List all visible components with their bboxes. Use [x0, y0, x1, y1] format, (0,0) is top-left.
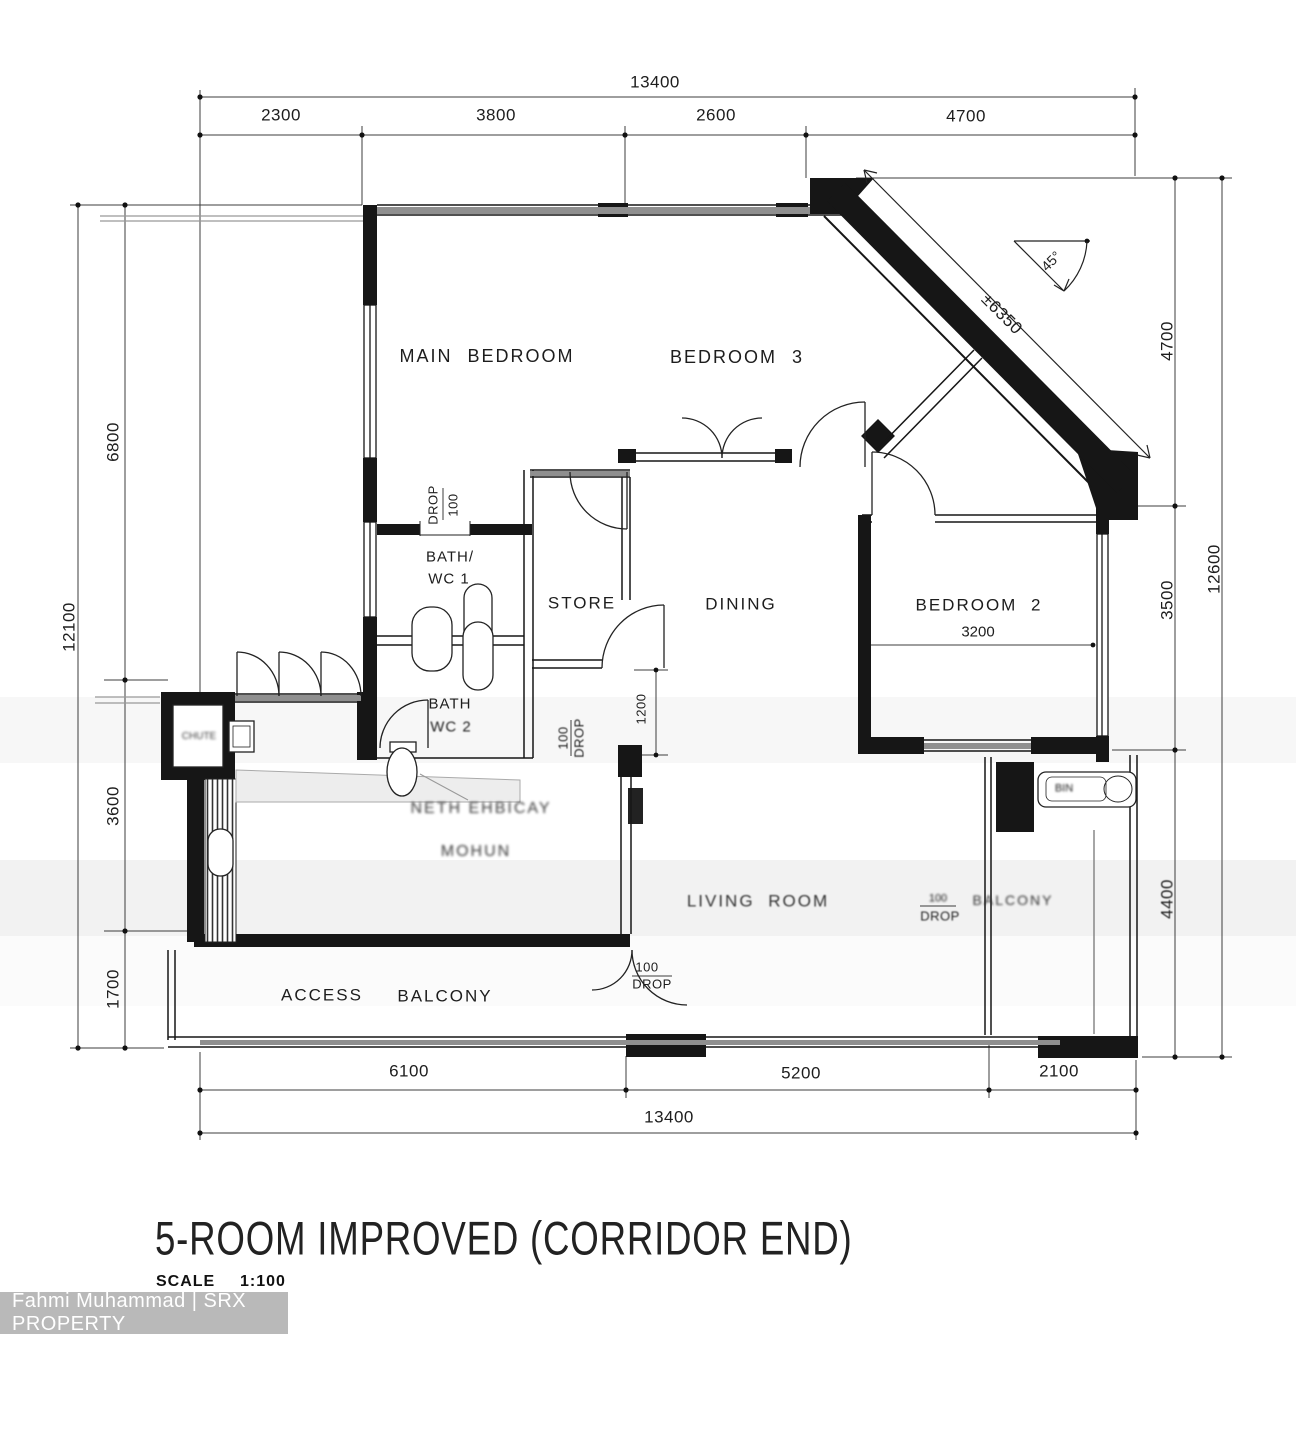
bath1-fitting2 — [412, 607, 452, 671]
drop-balcony-line1: 100 — [929, 894, 947, 905]
room-bedroom-3: BEDROOM 3 — [670, 348, 804, 366]
kitchen-garbled-line2: MOHUN — [441, 844, 511, 860]
dim-top-seg-1: 2300 — [261, 107, 301, 124]
chute-label: CHUTE — [182, 732, 216, 742]
room-main-bedroom: MAIN BEDROOM — [399, 347, 574, 365]
dim-bottom-seg-1: 6100 — [389, 1063, 429, 1080]
dim-left-total: 12100 — [61, 602, 78, 652]
drop-bath-line1: DROP — [427, 485, 440, 525]
room-store: STORE — [548, 595, 616, 612]
dim-bottom-seg-2: 5200 — [781, 1065, 821, 1082]
dim-bottom-seg-3: 2100 — [1039, 1063, 1079, 1080]
plan-title: 5-ROOM IMPROVED (CORRIDOR END) — [155, 1211, 853, 1266]
room-access-balcony-word1: ACCESS — [281, 987, 363, 1004]
scale-value: 1:100 — [240, 1273, 286, 1291]
drop-entry-line2: DROP — [632, 978, 672, 991]
wc-bowl — [387, 748, 417, 796]
bath2-fitting — [463, 622, 493, 690]
dim-right-seg-2: 3500 — [1159, 580, 1176, 620]
cooker-oval — [208, 829, 233, 876]
room-bath-wc1-line1: BATH/ — [426, 550, 474, 565]
dim-left-seg-3: 1700 — [105, 969, 122, 1009]
drop-entry-line1: 100 — [635, 961, 658, 974]
scale-label: SCALE — [156, 1273, 215, 1291]
sink-bin-label: BIN — [1055, 784, 1073, 795]
room-balcony: BALCONY — [973, 893, 1054, 907]
kitchen-garbled-line1: NETH EHBICAY — [410, 801, 551, 817]
watermark-text: Fahmi Muhammad | SRX PROPERTY — [0, 1290, 288, 1336]
dim-top-total: 13400 — [630, 74, 680, 91]
dim-bottom-total: 13400 — [644, 1109, 694, 1126]
room-bedroom-2: BEDROOM 2 — [915, 597, 1042, 614]
watermark-banner: Fahmi Muhammad | SRX PROPERTY — [0, 1292, 288, 1334]
dim-top-seg-2: 3800 — [476, 107, 516, 124]
room-living-room: LIVING ROOM — [687, 893, 829, 910]
room-bath-wc2-line2: WC 2 — [430, 720, 472, 735]
hall-dim-1200: 1200 — [635, 694, 648, 725]
context-lines — [95, 216, 363, 703]
dim-top-seg-4: 4700 — [946, 108, 986, 125]
dim-right-seg-3: 4400 — [1159, 879, 1176, 919]
dim-right-seg-1: 4700 — [1159, 321, 1176, 361]
room-access-balcony-word2: BALCONY — [397, 988, 492, 1005]
room-bath-wc2-line1: BATH — [429, 697, 472, 712]
drop-store-line1: 100 — [557, 726, 570, 749]
drop-store-line2: DROP — [573, 718, 586, 758]
room-dining: DINING — [705, 596, 777, 613]
bedroom-2-width: 3200 — [961, 625, 994, 640]
drop-bath-line2: 100 — [447, 493, 460, 516]
dim-top-seg-3: 2600 — [696, 107, 736, 124]
dim-left-seg-1: 6800 — [105, 422, 122, 462]
floorplan-page: 13400 2300 3800 2600 4700 12100 6800 360… — [0, 0, 1296, 1440]
drop-balcony-line2: DROP — [920, 910, 960, 923]
dim-left-seg-2: 3600 — [105, 786, 122, 826]
room-bath-wc1-line2: WC 1 — [428, 572, 470, 587]
dim-right-total: 12600 — [1206, 544, 1223, 594]
kitchen-counter — [236, 770, 520, 802]
